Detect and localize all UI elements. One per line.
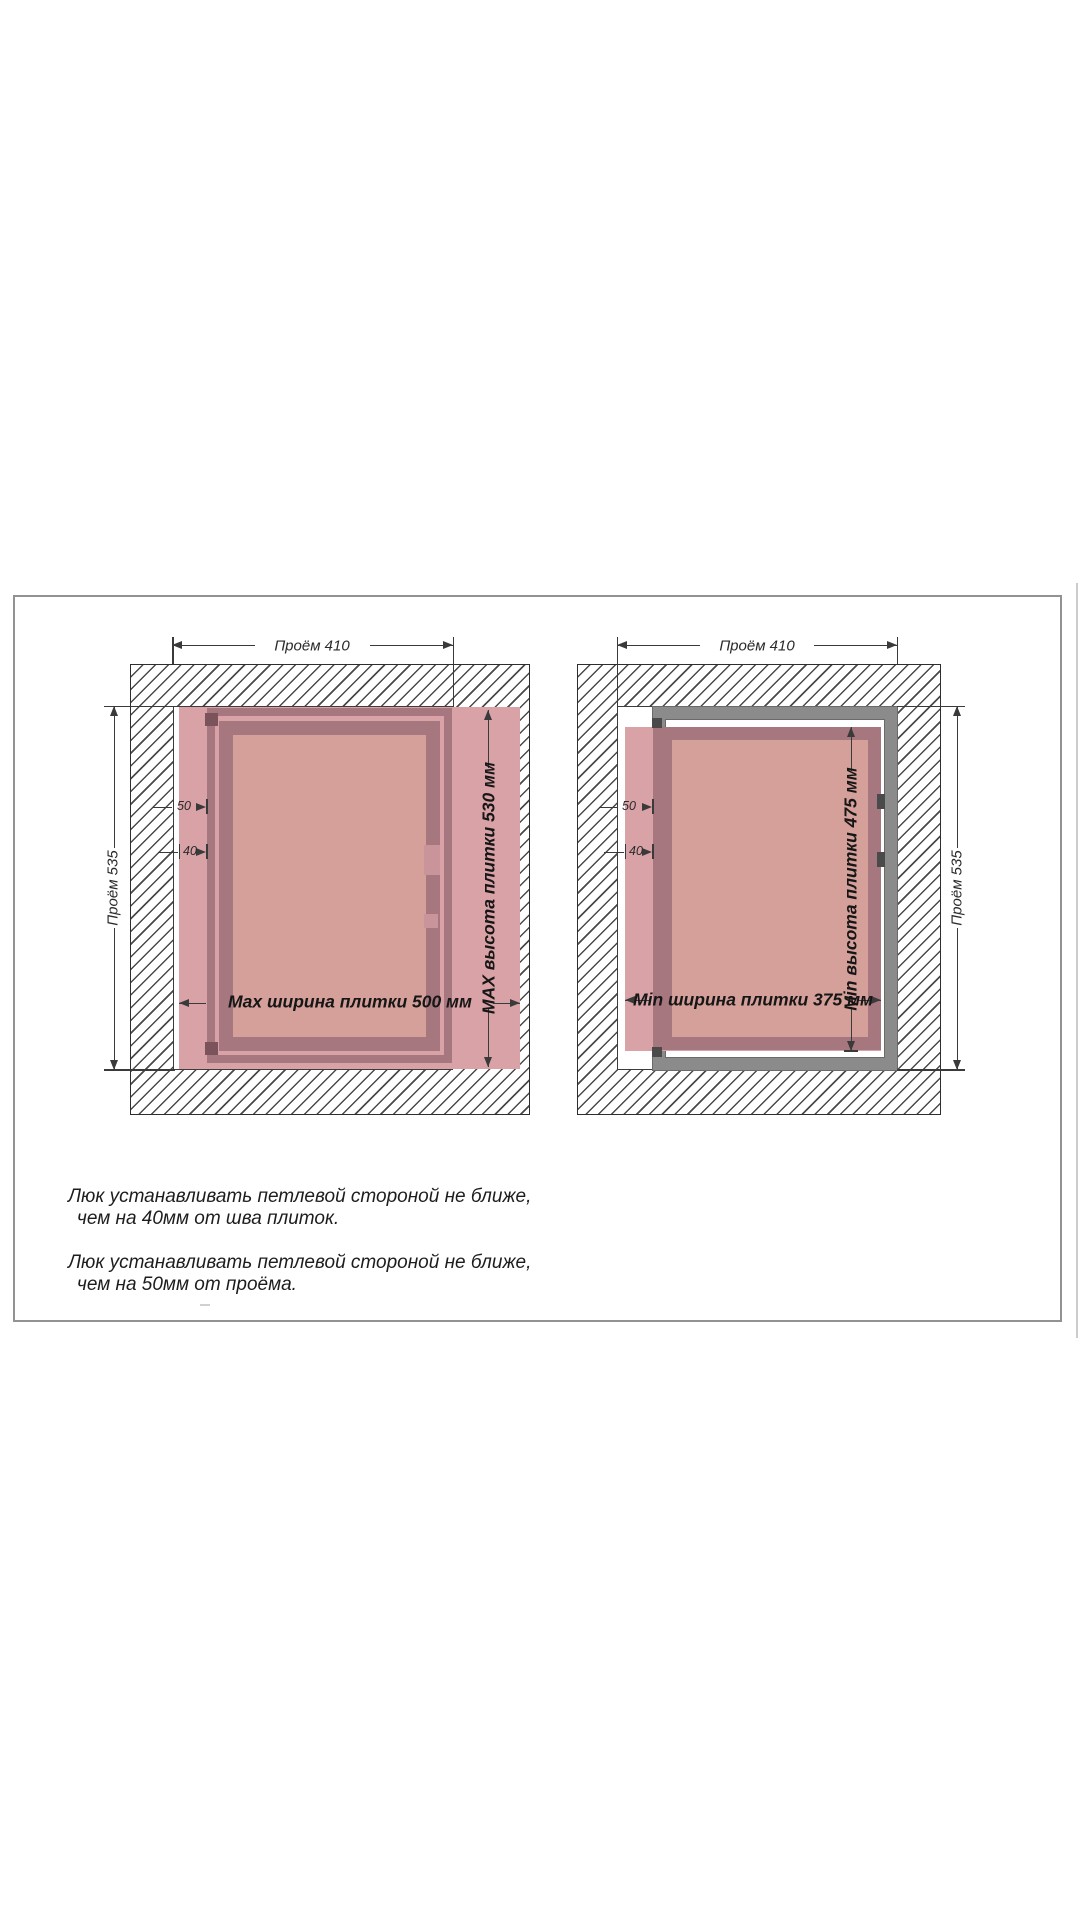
dimension-arrow [510, 999, 520, 1007]
scan-artifact-dash [200, 1304, 210, 1306]
dimension-tick [625, 844, 627, 859]
dimension-arrow [196, 803, 206, 811]
left-tile-height-label: MAX высота плитки 530 мм [479, 762, 500, 1014]
dimension-line [617, 645, 700, 647]
dimension-arrow [847, 727, 855, 737]
right-hinge-bottom [652, 1047, 662, 1057]
left-offset-40-label: 40 [183, 844, 197, 858]
dimension-line [957, 706, 959, 848]
dimension-line [957, 928, 959, 1070]
dimension-line [172, 645, 255, 647]
dimension-arrow [887, 641, 897, 649]
dimension-arrow [172, 641, 182, 649]
left-latch-notch-upper [424, 845, 440, 875]
note-hinge-side-tiles: Люк устанавливать петлевой стороной не б… [68, 1186, 531, 1230]
dimension-arrow [484, 710, 492, 720]
dimension-arrow [953, 1060, 961, 1070]
right-hinge-top [652, 718, 662, 728]
dimension-arrow [953, 706, 961, 716]
left-tile-width-label: Max ширина плитки 500 мм [228, 992, 472, 1013]
left-offset-50-label: 50 [177, 799, 191, 813]
dimension-tail [604, 852, 624, 854]
dimension-tick [206, 799, 208, 814]
dimension-arrow [110, 706, 118, 716]
dimension-arrow [110, 1060, 118, 1070]
note-line: Люк устанавливать петлевой стороной не б… [68, 1186, 531, 1208]
dimension-tail [153, 807, 172, 809]
note-line: чем на 40мм от шва плиток. [68, 1208, 531, 1230]
right-offset-40-label: 40 [629, 844, 643, 858]
dimension-line [114, 706, 116, 848]
left-latch-notch-lower [424, 914, 438, 928]
right-tile-width-label: Min ширина плитки 375 мм [633, 990, 873, 1011]
dimension-arrow [179, 999, 189, 1007]
left-opening-height-label: Проём 535 [105, 850, 122, 925]
dimension-arrow [443, 641, 453, 649]
right-tile-height-label: Min высота плитки 475 мм [841, 767, 862, 1010]
dimension-tick [652, 799, 654, 814]
dimension-line [814, 645, 897, 647]
dimension-arrow [642, 803, 652, 811]
dimension-tick [652, 844, 654, 859]
dimension-tick [206, 844, 208, 859]
dimension-arrow [484, 1057, 492, 1067]
right-latch-upper [877, 794, 885, 809]
left-hinge-top [205, 713, 218, 726]
dimension-tick [179, 844, 181, 859]
note-hinge-side-opening: Люк устанавливать петлевой стороной не б… [68, 1252, 531, 1296]
right-latch-lower [877, 852, 885, 867]
dimension-tick [844, 1050, 858, 1052]
dimension-tail [599, 807, 618, 809]
left-hinge-bottom [205, 1042, 218, 1055]
right-opening-height-label: Проём 535 [949, 850, 966, 925]
note-line: чем на 50мм от проёма. [68, 1274, 531, 1296]
dimension-arrow [617, 641, 627, 649]
note-line: Люк устанавливать петлевой стороной не б… [68, 1252, 531, 1274]
dimension-tail [158, 852, 178, 854]
left-opening-width-label: Проём 410 [274, 638, 349, 655]
page-right-edge-line [1076, 583, 1078, 1338]
document-page: Проём 410 Проём 535 MAX высота плитки 53… [0, 0, 1080, 1920]
dimension-tick [617, 799, 619, 814]
dimension-line [370, 645, 453, 647]
dimension-arrow [642, 848, 652, 856]
dimension-tick [173, 799, 175, 814]
dimension-line [114, 928, 116, 1070]
right-opening-width-label: Проём 410 [719, 638, 794, 655]
dimension-arrow [196, 848, 206, 856]
right-offset-50-label: 50 [622, 799, 636, 813]
